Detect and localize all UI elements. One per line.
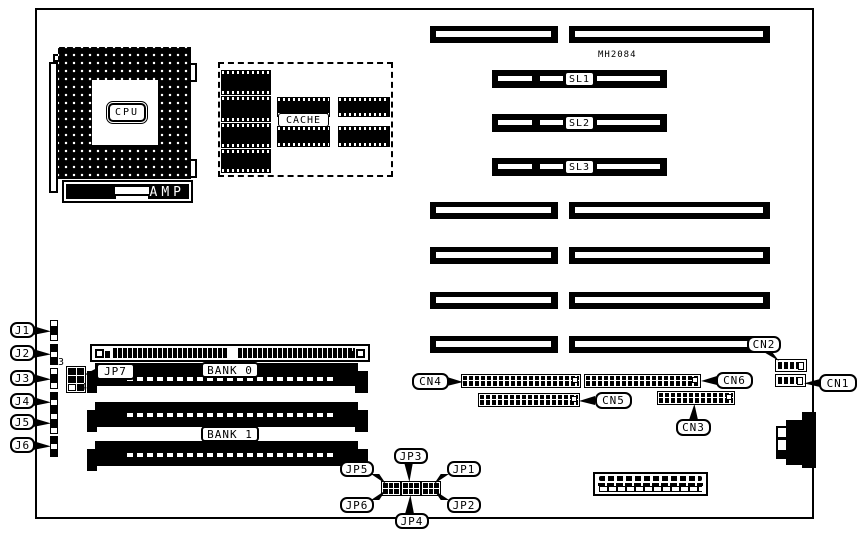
cache-chip	[338, 126, 390, 147]
jp2-label-box: JP2	[447, 497, 481, 513]
j6-label: J6	[15, 439, 30, 452]
j1-label-box: J1	[10, 322, 35, 338]
bank1-clip-left	[87, 449, 97, 471]
expansion-slot	[430, 247, 558, 264]
cn6-header	[584, 374, 701, 388]
cache-chip	[221, 96, 271, 122]
power-connector	[593, 472, 708, 496]
cn4-label: CN4	[419, 375, 442, 388]
bank1-label: BANK 1	[207, 428, 253, 441]
cn4-header	[461, 374, 581, 388]
jp3-label: JP3	[400, 450, 423, 463]
j2-label: J2	[15, 347, 30, 360]
cn5-header	[478, 393, 580, 407]
expansion-slot	[569, 336, 770, 353]
bank1-simm-slot	[95, 441, 358, 466]
cache-label: CACHE	[286, 115, 321, 126]
cache-chip	[221, 70, 271, 95]
jp1-label-box: JP1	[447, 461, 481, 477]
jp4-label: JP4	[401, 515, 424, 528]
cpu-label-box: CPU	[108, 103, 146, 122]
cn2-header-bottom	[775, 374, 806, 387]
cache-label-box: CACHE	[278, 113, 329, 127]
cache-chip	[221, 123, 271, 148]
expansion-slot	[430, 202, 558, 219]
sl1-slot: SL1	[492, 70, 667, 88]
cn2-header-top	[775, 359, 807, 372]
sl3-label: SL3	[569, 162, 590, 173]
sl1-label: SL1	[569, 74, 590, 85]
din-pin-hole	[778, 440, 786, 450]
jp4-label-box: JP4	[395, 513, 429, 529]
sl2-label: SL2	[569, 118, 590, 129]
cn5-label: CN5	[602, 394, 625, 407]
jp1-label: JP1	[453, 463, 476, 476]
cn6-label-box: CN6	[716, 372, 753, 389]
jp6-label-box: JP6	[340, 497, 374, 513]
simm-slot	[95, 402, 358, 427]
keyboard-din-connector	[776, 412, 816, 470]
cn4-label-box: CN4	[412, 373, 449, 390]
bank1-label-box: BANK 1	[201, 426, 259, 442]
sl2-label-box: SL2	[564, 115, 595, 131]
cache-chip	[338, 97, 390, 117]
expansion-slot	[430, 292, 558, 309]
cn1-label: CN1	[827, 377, 850, 390]
amp-bar: AMP	[62, 180, 193, 203]
cache-chip	[221, 149, 271, 173]
expansion-slot	[569, 202, 770, 219]
cn3-label-box: CN3	[676, 419, 711, 436]
jumper-block	[381, 481, 401, 496]
expansion-slot	[430, 336, 558, 353]
j5-label-box: J5	[10, 414, 35, 430]
jp5-label-box: JP5	[340, 461, 374, 477]
cpu-bump-bottom	[189, 159, 197, 178]
jp7-pin3-label: 3	[58, 357, 64, 368]
j5-label: J5	[15, 416, 30, 429]
jp7-label-box: JP7	[96, 363, 135, 380]
simm-clip-left	[87, 410, 97, 432]
cpu-label: CPU	[115, 107, 139, 118]
bank0-clip-right	[355, 371, 368, 393]
simm-edge-connector	[90, 344, 370, 362]
expansion-slot	[569, 292, 770, 309]
motherboard-diagram: CPU AMP CACHE MH2084 SL1 SL2	[0, 0, 867, 544]
j4-label: J4	[15, 395, 30, 408]
bank0-label: BANK 0	[207, 364, 253, 377]
amp-bar-window	[115, 187, 149, 194]
din-pin-hole	[778, 428, 786, 437]
jp2-label: JP2	[453, 499, 476, 512]
jp3-label-box: JP3	[394, 448, 428, 464]
ic-label: MH2084	[598, 50, 637, 60]
j2-label-box: J2	[10, 345, 35, 361]
jumper-block	[401, 481, 421, 496]
expansion-slot	[569, 247, 770, 264]
j6-label-box: J6	[10, 437, 35, 453]
expansion-slot	[569, 26, 770, 43]
cpu-bump-top	[189, 63, 197, 82]
cn5-label-box: CN5	[595, 392, 632, 409]
cn3-header	[657, 391, 735, 405]
cn2-label: CN2	[753, 338, 776, 351]
sl1-label-box: SL1	[564, 71, 595, 87]
jp5-label: JP5	[346, 463, 369, 476]
j4-label-box: J4	[10, 393, 35, 409]
sl3-slot: SL3	[492, 158, 667, 176]
cn6-label: CN6	[723, 374, 746, 387]
cn2-label-box: CN2	[747, 336, 781, 353]
sl3-label-box: SL3	[564, 159, 595, 175]
amp-bar-window2	[116, 196, 148, 200]
cache-chip	[277, 126, 330, 147]
bank0-label-box: BANK 0	[201, 362, 259, 378]
sl2-slot: SL2	[492, 114, 667, 132]
cpu-side-bracket	[49, 62, 58, 193]
j3-label: J3	[15, 372, 30, 385]
jp7-pin4-label: 4	[81, 382, 87, 393]
j3-label-box: J3	[10, 370, 35, 386]
j1-label: J1	[15, 324, 30, 337]
cn3-label: CN3	[682, 421, 705, 434]
simm-clip-right	[355, 410, 368, 432]
cn1-label-box: CN1	[819, 374, 857, 392]
expansion-slot	[430, 26, 558, 43]
amp-brand-label: AMP	[150, 185, 185, 200]
jp7-label: JP7	[104, 365, 127, 378]
jp6-label: JP6	[346, 499, 369, 512]
